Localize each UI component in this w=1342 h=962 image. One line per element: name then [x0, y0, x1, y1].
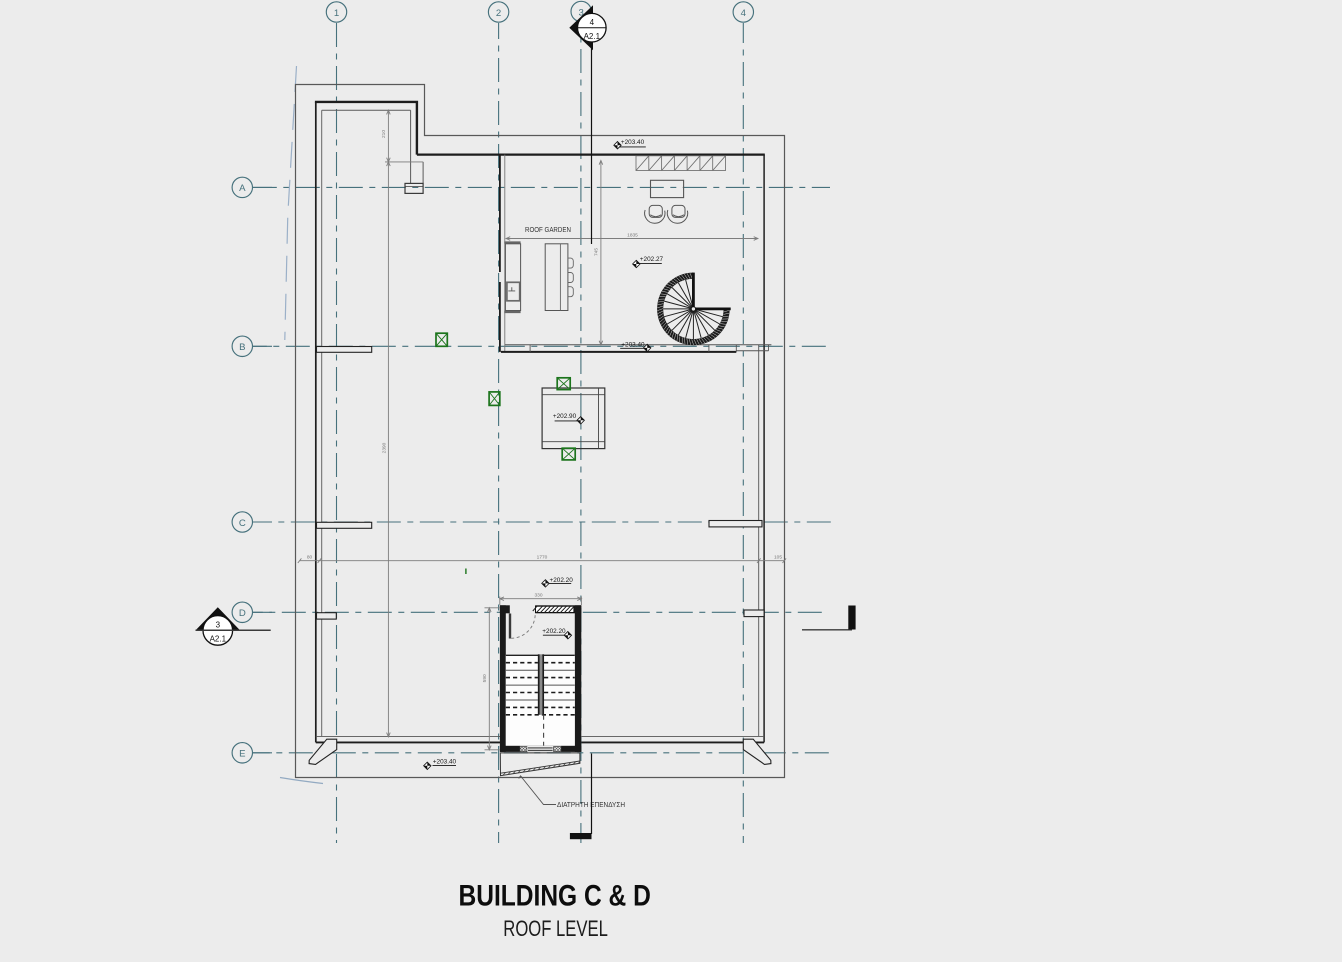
svg-text:745: 745: [594, 248, 600, 256]
svg-text:+202.90: +202.90: [553, 413, 577, 420]
svg-text:210: 210: [381, 130, 387, 138]
svg-text:B: B: [239, 342, 245, 353]
svg-text:D: D: [239, 608, 246, 619]
svg-text:80: 80: [307, 554, 313, 560]
svg-text:590: 590: [482, 674, 488, 682]
svg-text:3: 3: [216, 620, 221, 629]
svg-text:A2.1: A2.1: [210, 635, 227, 644]
svg-text:BUILDING C & D: BUILDING C & D: [459, 880, 651, 913]
svg-text:330: 330: [534, 593, 542, 599]
svg-text:+203.40: +203.40: [621, 341, 645, 348]
svg-text:+202.20: +202.20: [550, 577, 574, 584]
svg-text:1835: 1835: [627, 232, 638, 238]
svg-text:4: 4: [741, 8, 747, 19]
svg-text:+203.40: +203.40: [621, 139, 645, 146]
svg-text:A2.1: A2.1: [584, 32, 601, 41]
svg-text:ROOF GARDEN: ROOF GARDEN: [525, 225, 571, 234]
svg-text:1770: 1770: [537, 554, 548, 560]
svg-text:E: E: [239, 749, 245, 760]
svg-text:105: 105: [774, 554, 782, 560]
svg-text:A: A: [239, 183, 246, 194]
svg-text:C: C: [239, 518, 246, 529]
svg-text:+202.20: +202.20: [542, 628, 566, 635]
svg-text:2: 2: [496, 8, 501, 19]
svg-text:+203.40: +203.40: [433, 758, 457, 765]
svg-text:+202.27: +202.27: [640, 256, 664, 263]
svg-text:2390: 2390: [381, 442, 387, 453]
svg-text:ROOF LEVEL: ROOF LEVEL: [503, 916, 608, 941]
svg-text:1: 1: [334, 8, 339, 19]
svg-text:4: 4: [590, 18, 595, 27]
